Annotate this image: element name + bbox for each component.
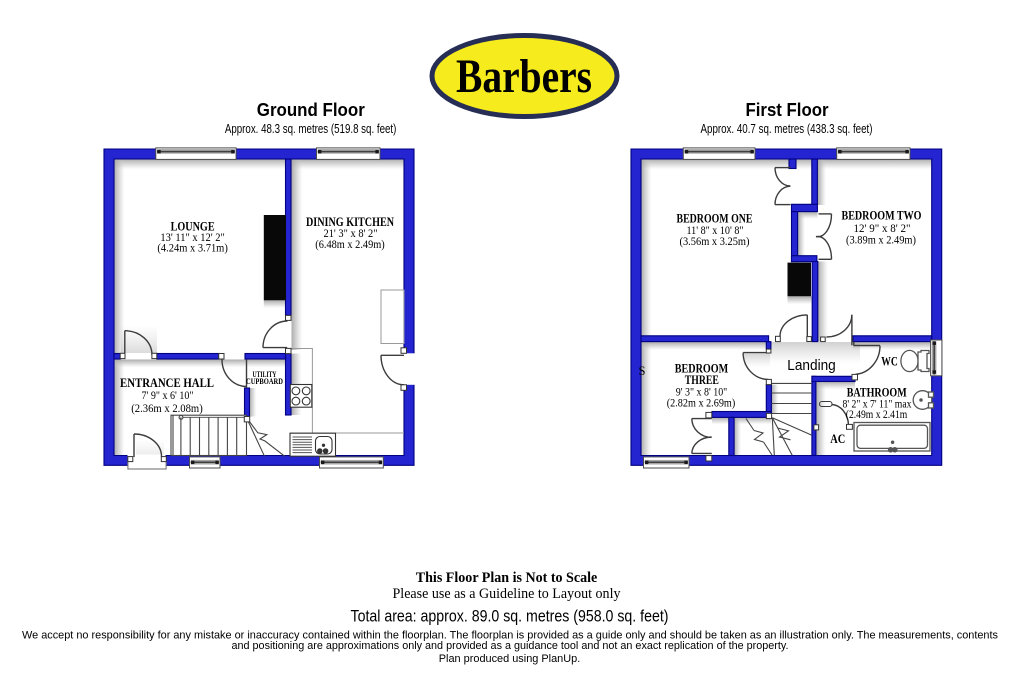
svg-text:Plan produced using PlanUp.: Plan produced using PlanUp. xyxy=(439,653,581,665)
svg-text:(6.48m x 2.49m): (6.48m x 2.49m) xyxy=(315,237,385,251)
svg-text:Approx. 40.7 sq. metres (438.: Approx. 40.7 sq. metres (438.3 sq. feet) xyxy=(701,121,873,136)
svg-text:S: S xyxy=(639,364,646,378)
svg-text:Total area: approx. 89.0 sq.: Total area: approx. 89.0 sq. metres (958… xyxy=(351,607,669,626)
svg-text:(3.89m x 2.49m): (3.89m x 2.49m) xyxy=(846,233,916,247)
svg-text:CUPBOARD: CUPBOARD xyxy=(246,377,283,386)
svg-text:Barbers: Barbers xyxy=(456,50,592,103)
svg-text:Ground Floor: Ground Floor xyxy=(257,100,365,120)
svg-text:(2.36m x 2.08m): (2.36m x 2.08m) xyxy=(131,401,203,415)
svg-text:AC: AC xyxy=(830,432,845,446)
svg-text:First Floor: First Floor xyxy=(746,100,829,120)
svg-text:Landing: Landing xyxy=(787,357,836,374)
svg-text:(3.56m x 3.25m): (3.56m x 3.25m) xyxy=(680,234,750,248)
svg-text:(2.49m x 2.41m: (2.49m x 2.41m xyxy=(846,407,908,421)
svg-text:WC: WC xyxy=(881,355,898,369)
svg-text:Approx. 48.3 sq. metres (519.: Approx. 48.3 sq. metres (519.8 sq. feet) xyxy=(225,121,397,136)
svg-text:and positioning are approximat: and positioning are approximations only … xyxy=(232,640,789,652)
svg-text:Please use as a Guideline to L: Please use as a Guideline to Layout only xyxy=(393,586,622,602)
svg-text:(2.82m x 2.69m): (2.82m x 2.69m) xyxy=(667,396,736,410)
svg-text:7' 9" x 6' 10": 7' 9" x 6' 10" xyxy=(142,388,194,402)
svg-text:This Floor Plan is Not to Scal: This Floor Plan is Not to Scale xyxy=(416,570,598,586)
svg-text:(4.24m x 3.71m): (4.24m x 3.71m) xyxy=(157,241,228,255)
